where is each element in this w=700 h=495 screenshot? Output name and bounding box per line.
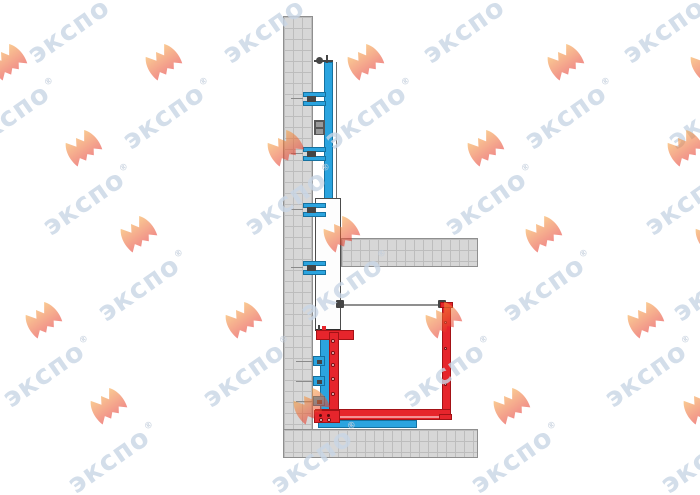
- upper-floor-slab: [341, 238, 478, 267]
- frame-corner-block: [314, 410, 340, 423]
- mast-top-pulley: [314, 55, 334, 67]
- frame-right-foot: [439, 414, 452, 420]
- mast-flange-line: [336, 62, 337, 199]
- carriage-pin: [322, 326, 326, 330]
- bolt: [331, 339, 335, 343]
- bolt: [331, 351, 335, 355]
- anchor-leader-line: [291, 267, 303, 268]
- mast-clamp: [314, 120, 325, 135]
- bracket-bolt: [307, 96, 316, 102]
- carriage-pin: [318, 325, 320, 330]
- anchor-leader-line: [291, 209, 303, 210]
- pulley-wheel: [316, 57, 323, 64]
- anchor-leader-line: [296, 361, 313, 362]
- bolt: [331, 392, 335, 396]
- bolt: [331, 377, 335, 381]
- hoist-elevation-diagram: [0, 0, 700, 495]
- platform-frame-right-post: [442, 302, 451, 418]
- bracket-bolt: [307, 151, 316, 157]
- right-post-cap: [440, 302, 453, 308]
- lower-wall-bracket: [313, 396, 325, 406]
- bolt: [444, 347, 447, 350]
- wall-tie-bracket: [303, 92, 326, 106]
- lower-wall-bracket: [313, 376, 325, 386]
- drawing-canvas: экспо® экспо® экспо® экспо®: [0, 0, 700, 495]
- wall-tie-bracket: [303, 203, 326, 217]
- anchor-leader-line: [296, 381, 313, 382]
- ground-floor-slab: [283, 429, 478, 458]
- wall-tie-bracket: [303, 147, 326, 161]
- wall-tie-bracket: [303, 261, 326, 275]
- lower-wall-bracket: [313, 356, 325, 366]
- wall-section: [283, 16, 313, 430]
- bracket-bolt: [307, 265, 316, 271]
- anchor-leader-line: [291, 98, 303, 99]
- anchor-leader-line: [291, 153, 303, 154]
- platform-top-rail: [339, 304, 442, 306]
- anchor-leader-line: [296, 401, 313, 402]
- bolt: [331, 363, 335, 367]
- bracket-bolt: [307, 207, 316, 213]
- pulley-pin: [326, 55, 328, 63]
- bolt: [444, 321, 447, 324]
- rail-end-bolt: [336, 300, 344, 308]
- bolt: [444, 383, 447, 386]
